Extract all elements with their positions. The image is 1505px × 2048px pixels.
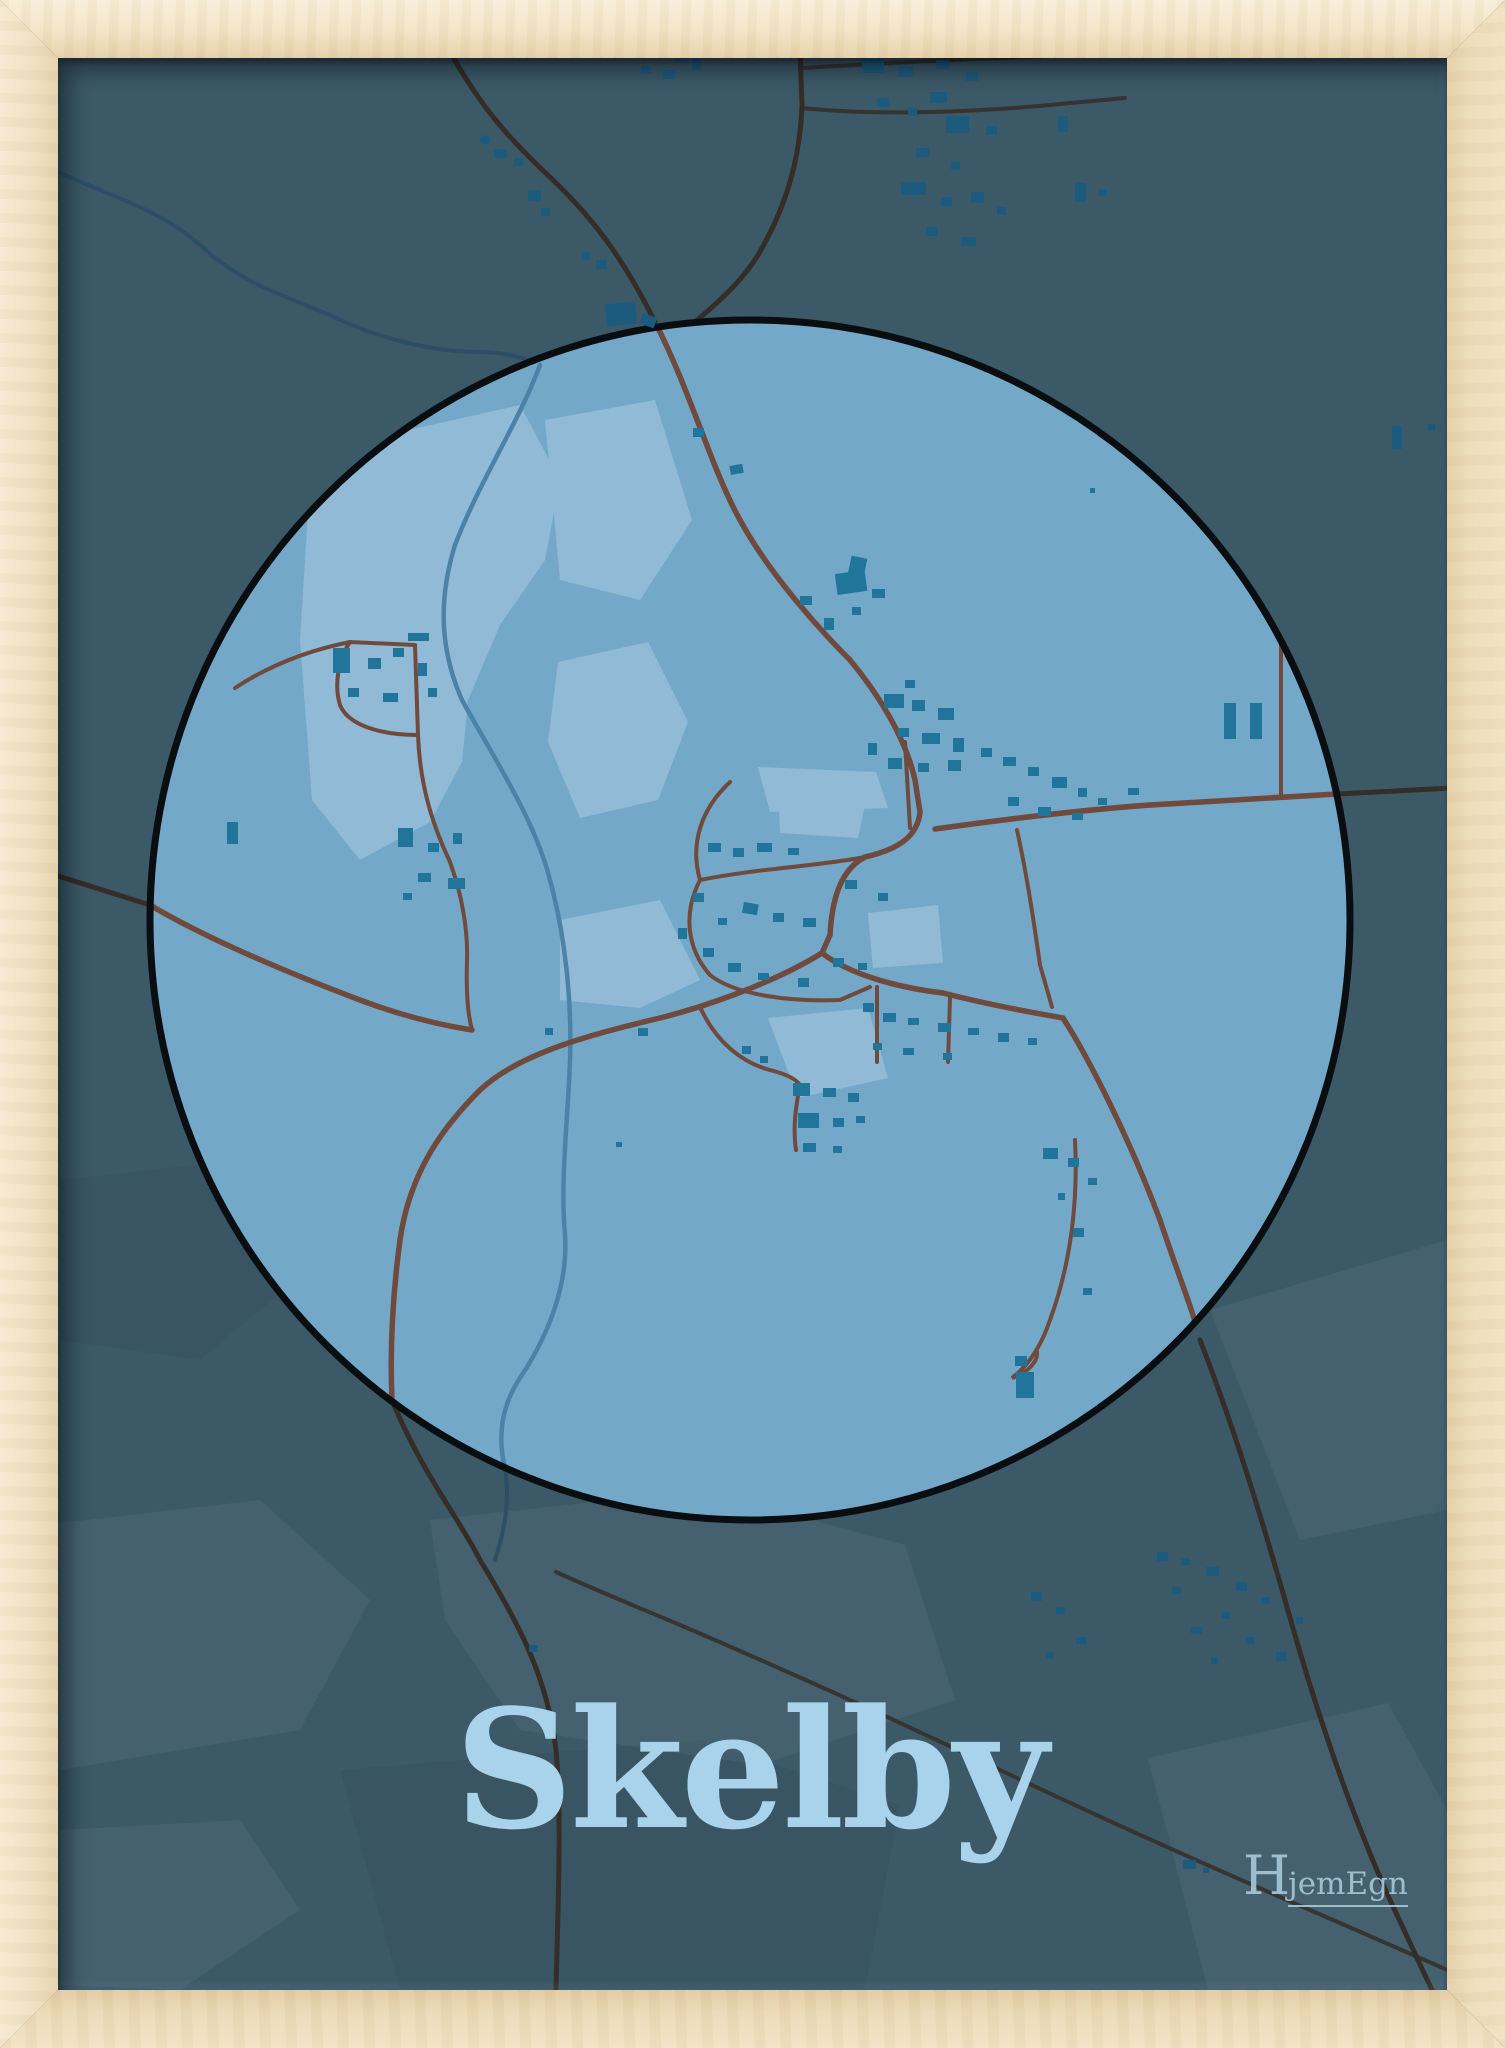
brand-wordmark: jemEgn — [1288, 1866, 1408, 1907]
frame-right — [1447, 0, 1505, 2048]
frame-bottom — [0, 1990, 1505, 2048]
poster-title: Skelby — [455, 1688, 1046, 1852]
brand-initial: H — [1243, 1844, 1290, 1907]
framed-poster-photo: Skelby HjemEgn — [0, 0, 1505, 2048]
frame-top — [0, 0, 1505, 58]
frame-left — [0, 0, 58, 2048]
brand-logo: HjemEgn — [1243, 1849, 1408, 1903]
